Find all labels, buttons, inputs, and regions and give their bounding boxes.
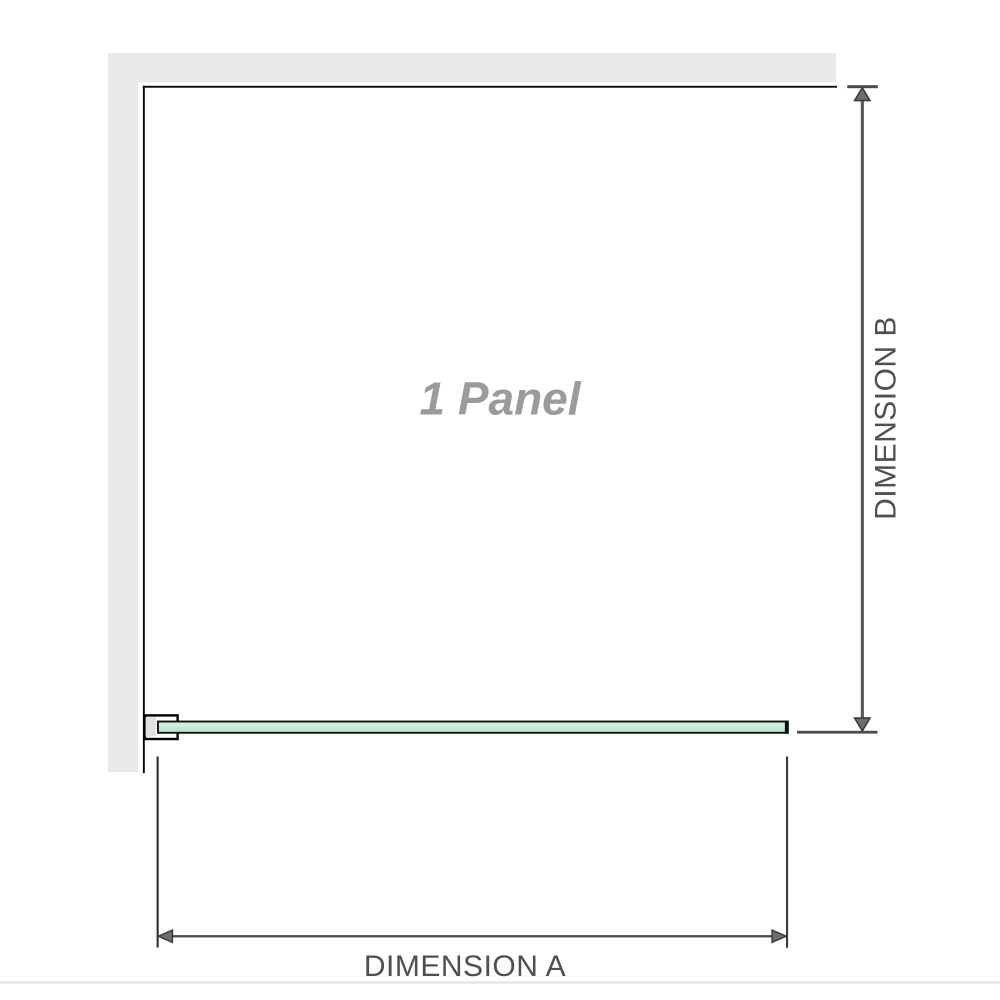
svg-text:DIMENSION A: DIMENSION A bbox=[364, 950, 566, 983]
svg-text:1 Panel: 1 Panel bbox=[419, 372, 581, 424]
svg-text:DIMENSION B: DIMENSION B bbox=[870, 316, 903, 520]
